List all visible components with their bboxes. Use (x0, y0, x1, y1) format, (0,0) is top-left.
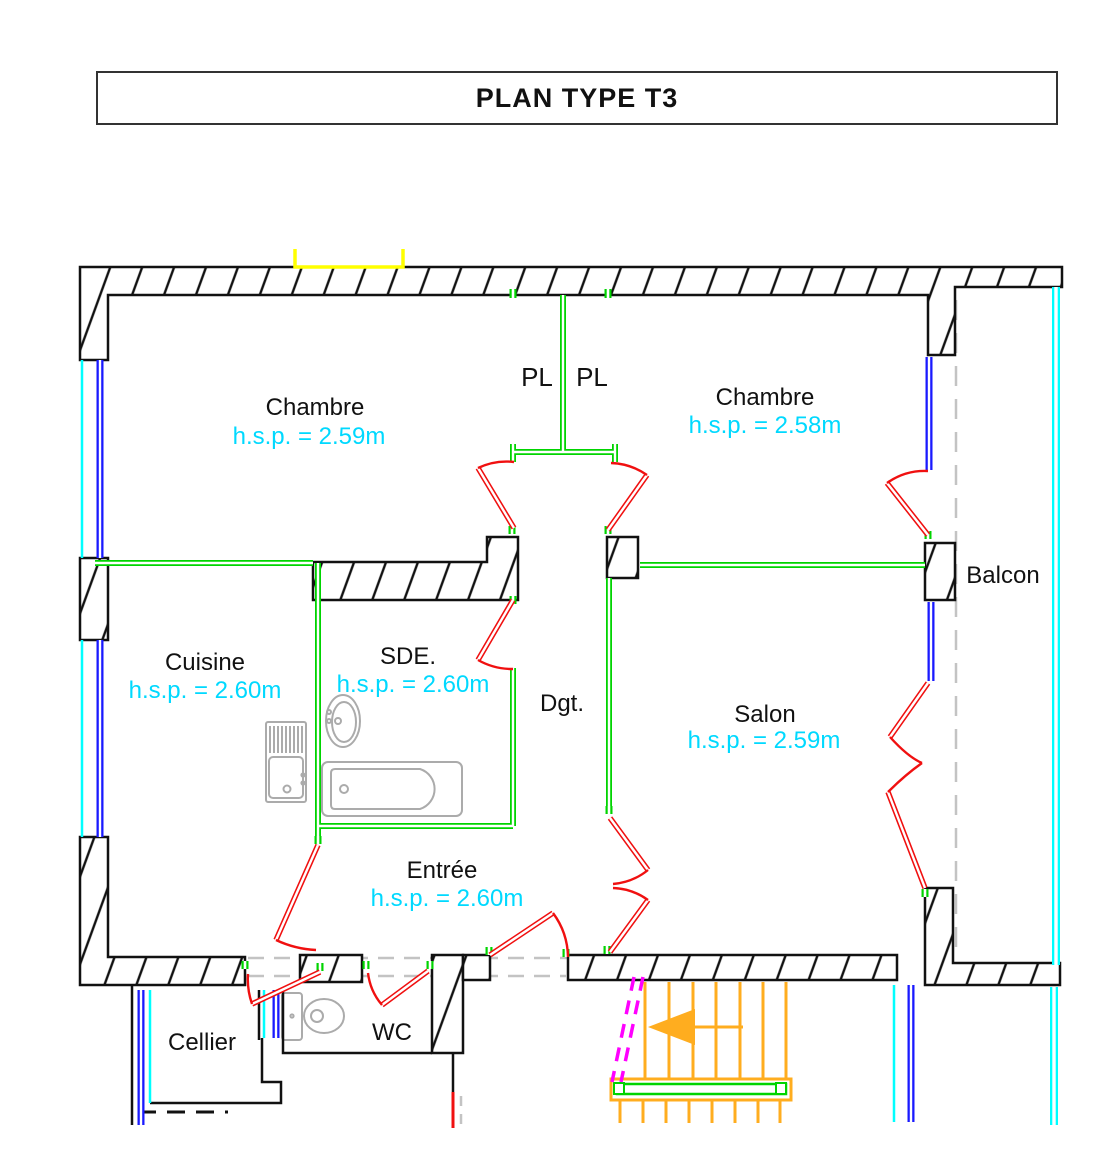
label-balcon: Balcon (966, 562, 1039, 589)
toilet-fixture (282, 993, 344, 1040)
floor-plan-page: PLAN TYPE T3 (0, 0, 1105, 1166)
wall-wc-pier (432, 955, 463, 1053)
hsp-salon: h.s.p. = 2.59m (688, 727, 841, 754)
stairs-landing-edge (614, 1083, 786, 1094)
label-chambre1: Chambre (266, 394, 365, 421)
hsp-cuisine: h.s.p. = 2.60m (129, 677, 282, 704)
sink-fixture (326, 695, 360, 747)
hsp-chambre2: h.s.p. = 2.58m (689, 412, 842, 439)
room-labels: Chambre h.s.p. = 2.59m Chambre h.s.p. = … (129, 362, 1040, 1056)
stairs-arrow-head (648, 1009, 695, 1045)
hsp-chambre1: h.s.p. = 2.59m (233, 423, 386, 450)
wall-left-pier (80, 558, 108, 640)
wall-top (80, 267, 1062, 360)
wall-bottom-right (925, 888, 1060, 985)
stove-fixture (266, 722, 306, 802)
stairs-cut-line-magenta (612, 977, 643, 1082)
label-cellier: Cellier (168, 1029, 236, 1056)
hsp-entree: h.s.p. = 2.60m (371, 885, 524, 912)
wall-bottom-left (80, 837, 245, 985)
label-sde: SDE. (380, 643, 436, 670)
label-entree: Entrée (407, 857, 478, 884)
label-dgt: Dgt. (540, 690, 584, 717)
label-cuisine: Cuisine (165, 649, 245, 676)
landing-green-bar (617, 1084, 786, 1094)
landing-end-right (776, 1083, 786, 1094)
bathtub-fixture (322, 762, 462, 816)
hsp-sde: h.s.p. = 2.60m (337, 671, 490, 698)
title-block: PLAN TYPE T3 (97, 72, 1057, 124)
wall-bottom-main (568, 955, 897, 980)
wall-salon-balcon-pier (925, 543, 955, 600)
stairs-lower-treads (620, 1099, 780, 1123)
label-chambre2: Chambre (716, 384, 815, 411)
landing-end-left (614, 1083, 624, 1094)
wall-chambre-sde (313, 537, 518, 600)
wall-bottom-band-3 (463, 955, 490, 980)
lintel-yellow (295, 249, 403, 267)
page-title: PLAN TYPE T3 (476, 83, 679, 113)
corridor-dash-horizontal (222, 958, 568, 976)
label-pl-left: PL (521, 362, 553, 392)
label-wc: WC (372, 1019, 412, 1046)
label-pl-right: PL (576, 362, 608, 392)
wall-pl-pier (607, 537, 638, 578)
floor-plan-canvas: PLAN TYPE T3 (0, 0, 1105, 1166)
label-salon: Salon (734, 701, 795, 728)
